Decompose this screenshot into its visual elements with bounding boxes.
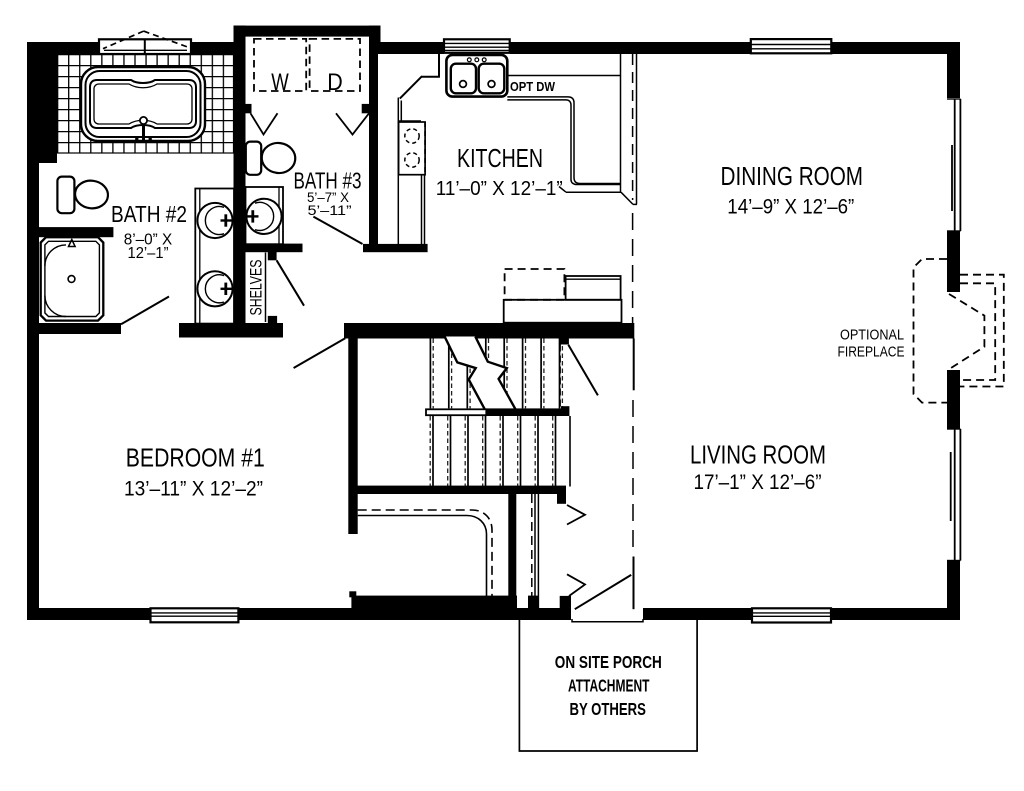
svg-text:BATH #2: BATH #2 — [111, 201, 187, 227]
svg-text:14’–9” X 12’–6”: 14’–9” X 12’–6” — [727, 195, 854, 218]
svg-text:17’–1” X 12’–6”: 17’–1” X 12’–6” — [694, 471, 822, 494]
svg-text:KITCHEN: KITCHEN — [457, 143, 543, 173]
svg-text:OPTIONAL: OPTIONAL — [840, 326, 904, 343]
svg-text:12’–1”: 12’–1” — [128, 245, 169, 262]
svg-text:SHELVES: SHELVES — [246, 260, 265, 316]
svg-text:D: D — [327, 69, 343, 96]
svg-text:13’–11” X 12’–2”: 13’–11” X 12’–2” — [124, 477, 263, 500]
svg-text:ATTACHMENT: ATTACHMENT — [568, 675, 650, 695]
svg-text:W: W — [271, 69, 289, 96]
svg-text:ON SITE PORCH: ON SITE PORCH — [555, 652, 662, 672]
svg-text:LIVING ROOM: LIVING ROOM — [690, 442, 826, 470]
svg-text:BEDROOM #1: BEDROOM #1 — [126, 444, 265, 472]
svg-text:BY OTHERS: BY OTHERS — [569, 699, 646, 719]
svg-text:DINING ROOM: DINING ROOM — [721, 163, 864, 191]
svg-text:11’–0” X 12’–1”: 11’–0” X 12’–1” — [436, 177, 563, 200]
svg-text:FIREPLACE: FIREPLACE — [838, 343, 905, 360]
svg-text:OPT DW: OPT DW — [510, 80, 555, 94]
svg-text:5’–11”: 5’–11” — [308, 202, 352, 218]
